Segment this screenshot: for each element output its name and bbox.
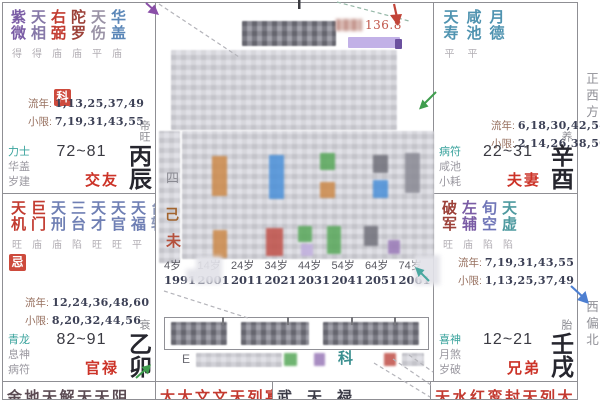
star-name: 左辅 — [459, 200, 477, 232]
summary-table — [164, 317, 429, 350]
liunian-label: 流年: — [28, 98, 52, 110]
star-column: 天福平 — [128, 200, 146, 248]
palace-footer: 力士 华盖 岁建 72~81 交友 帝旺 丙辰 — [8, 112, 152, 190]
star-column: 天才旺 — [88, 200, 106, 248]
star-brightness: 旺 — [443, 236, 453, 248]
star-brightness: 平 — [445, 45, 455, 57]
star-brightness: 庙 — [112, 45, 122, 57]
bazi-wood-char-block — [298, 226, 312, 242]
star-name: 华盖 — [108, 9, 126, 41]
xiaoxian-values: 1,13,25,37,49 — [485, 274, 574, 287]
sihua-badge-ji: 忌 — [9, 254, 26, 271]
e-mark: E — [182, 352, 190, 366]
center-info-panel[interactable]: 136.8 四 己 未 4岁1991 14岁2001 24岁2011 34岁20… — [155, 2, 434, 382]
star-name: 三台 — [68, 200, 86, 232]
star-brightness: 平 — [92, 45, 102, 57]
star-column: 天寿平 — [439, 9, 460, 57]
star-column: 紫微得 — [8, 9, 26, 57]
blurred-paragraph — [171, 50, 397, 130]
minor-gods: 青龙 息神 病符 — [8, 333, 44, 378]
palace-name: 交友 — [85, 169, 119, 190]
life-stage: 胎 — [560, 319, 572, 330]
star-name: 天才 — [88, 200, 106, 232]
star-column: 天刑庙 — [48, 200, 66, 248]
direction-label-west: 正西方 — [582, 72, 600, 122]
star-name: 天机 — [8, 200, 26, 232]
bottom-palace-stars: 天水红鸾封天列大 — [431, 382, 577, 400]
star-name: 紫微 — [8, 9, 26, 41]
liunian-values: 7,19,31,43,55 — [485, 256, 574, 269]
ganzhi-label: 壬戌 — [548, 332, 574, 378]
blurred-score-label — [336, 19, 362, 31]
palace-name: 兄弟 — [507, 357, 541, 378]
star-brightness: 庙 — [52, 236, 62, 248]
bazi-char-block — [405, 153, 420, 193]
star-brightness: 平 — [132, 236, 142, 248]
star-brightness: 得 — [32, 45, 42, 57]
censor-patch — [196, 256, 222, 284]
star-column: 陀罗庙 — [68, 9, 86, 57]
star-name: 天伤 — [88, 9, 106, 41]
score-row: 136.8 — [336, 18, 402, 32]
star-column: 左辅庙 — [459, 200, 477, 248]
pillar-char: 己 — [162, 207, 182, 221]
minor-gods: 喜神 月煞 岁破 — [439, 333, 475, 378]
direction-label-west-north: 西偏北 — [582, 300, 600, 350]
star-column: 巨门庙 — [28, 200, 46, 248]
star-name: 巨门 — [28, 200, 46, 232]
bazi-char-block — [388, 240, 400, 254]
age-range: 82~91 — [57, 331, 107, 349]
bottom-palace-4[interactable]: 天水红鸾封天列大 — [430, 381, 578, 400]
bottom-palace-stars: 武天禄 — [273, 382, 430, 400]
palace-name: 官禄 — [85, 357, 119, 378]
star-column: 天虚陷 — [499, 200, 517, 248]
bazi-char-block — [364, 226, 378, 246]
star-name: 右弼 — [48, 9, 66, 41]
star-column: 天机旺 — [8, 200, 26, 248]
star-brightness: 庙 — [72, 45, 82, 57]
bottom-palace-stars: 太太文文天列寡破天 — [156, 382, 272, 400]
date-column-char: 四 — [162, 171, 181, 184]
fire-char-block — [384, 353, 396, 366]
star-name: 天福 — [128, 200, 146, 232]
censor-patch — [414, 255, 440, 285]
ganzhi-label: 辛酉 — [548, 144, 574, 190]
star-column: 咸池平 — [462, 9, 483, 57]
star-name: 旬空 — [479, 200, 497, 232]
minor-gods: 病符 咸池 小耗 — [439, 145, 475, 190]
star-column: 旬空陷 — [479, 200, 497, 248]
star-column: 华盖庙 — [108, 9, 126, 57]
star-brightness: 陷 — [483, 236, 493, 248]
liunian-xiaoxian: 流年:7,19,31,43,55 小限:1,13,25,37,49 — [458, 254, 574, 291]
palace-xiongdi[interactable]: 破军旺左辅庙旬空陷天虚陷 流年:7,19,31,43,55 小限:1,13,25… — [433, 193, 578, 382]
star-column: 右弼庙 — [48, 9, 66, 57]
score-value: 136.8 — [365, 18, 402, 32]
star-name: 破军 — [439, 200, 457, 232]
star-brightness: 旺 — [12, 236, 22, 248]
bazi-char-block — [301, 244, 313, 256]
star-brightness: 旺 — [112, 236, 122, 248]
text-selection-highlight — [348, 37, 400, 48]
bazi-water-char-block — [269, 155, 284, 199]
pillar-char: 未 — [162, 233, 183, 248]
star-name: 陀罗 — [68, 9, 86, 41]
palace-footer: 喜神 月煞 岁破 12~21 兄弟 胎 壬戌 — [439, 300, 574, 378]
star-name: 天刑 — [48, 200, 66, 232]
palace-footer: 病符 咸池 小耗 22~31 夫妻 养 辛酉 — [439, 112, 574, 190]
liunian-label: 流年: — [458, 257, 482, 269]
bazi-wood-char-block — [320, 153, 335, 170]
star-brightness: 庙 — [52, 45, 62, 57]
star-name: 天相 — [28, 9, 46, 41]
star-brightness: 陷 — [72, 236, 82, 248]
star-column: 月德 — [485, 9, 506, 57]
selection-handle — [395, 39, 402, 49]
star-brightness: 庙 — [32, 236, 42, 248]
wood-char-block — [284, 353, 297, 366]
bazi-fire-char-block — [266, 228, 283, 256]
palace-footer: 青龙 息神 病符 82~91 官禄 衰 乙卯 — [8, 300, 152, 378]
star-list: 天机旺巨门庙天刑庙三台陷天才旺天官旺天福平台辅 — [3, 194, 155, 248]
palace-jiaoyou[interactable]: 紫微得天相得右弼庙陀罗庙天伤平华盖庙 科 流年:1,13,25,37,49 小限… — [2, 2, 156, 194]
bazi-water-char-block — [373, 180, 388, 198]
star-name: 天虚 — [499, 200, 517, 232]
life-stage: 帝旺 — [138, 120, 150, 142]
bottom-palace-2[interactable]: 太太文文天列寡破天 — [155, 381, 273, 400]
bottom-palace-3[interactable]: 武天禄 — [272, 381, 431, 400]
age-range: 22~31 — [483, 143, 533, 161]
star-list: 天寿平咸池平月德 — [434, 3, 577, 57]
star-name: 天寿 — [441, 9, 459, 41]
ziwei-chart-board: 紫微得天相得右弼庙陀罗庙天伤平华盖庙 科 流年:1,13,25,37,49 小限… — [0, 0, 600, 400]
palace-guanlu[interactable]: 天机旺巨门庙天刑庙三台陷天才旺天官旺天福平台辅 忌 流年:12,24,36,48… — [2, 193, 156, 382]
star-name: 天官 — [108, 200, 126, 232]
xiaoxian-label: 小限: — [458, 275, 482, 287]
blurred-row — [196, 353, 282, 367]
ganzhi-label: 乙卯 — [126, 332, 152, 378]
star-name: 月德 — [487, 9, 505, 41]
char-block — [314, 353, 325, 366]
star-column: 三台陷 — [68, 200, 86, 248]
minor-gods: 力士 华盖 岁建 — [8, 145, 44, 190]
ganzhi-label: 丙辰 — [126, 144, 152, 190]
life-stage: 养 — [560, 131, 572, 142]
star-brightness: 平 — [468, 45, 478, 57]
star-column: 天官旺 — [108, 200, 126, 248]
bazi-earth-char-block — [212, 156, 227, 196]
bottom-palace-stars: 金地天解天天阴 — [3, 382, 155, 400]
star-list: 紫微得天相得右弼庙陀罗庙天伤平华盖庙 — [3, 3, 155, 57]
bazi-earth-char-block — [213, 230, 227, 258]
blurred-name-row — [242, 21, 336, 46]
star-column: 破军旺 — [439, 200, 457, 248]
palace-name: 夫妻 — [507, 169, 541, 190]
bazi-wood-char-block — [327, 226, 341, 254]
palace-fuqi[interactable]: 天寿平咸池平月德 流年:6,18,30,42,54 小限:2,14,26,38,… — [433, 2, 578, 194]
bazi-char-block — [373, 155, 388, 173]
bazi-earth-char-block — [320, 182, 335, 198]
star-brightness: 庙 — [463, 236, 473, 248]
age-range: 12~21 — [483, 331, 533, 349]
star-column: 天相得 — [28, 9, 46, 57]
star-name: 咸池 — [464, 9, 482, 41]
liunian-values: 1,13,25,37,49 — [55, 97, 144, 110]
star-list: 破军旺左辅庙旬空陷天虚陷 — [434, 194, 577, 248]
blurred-row — [402, 353, 424, 366]
star-column: 天伤平 — [88, 9, 106, 57]
star-brightness: 陷 — [503, 236, 513, 248]
age-range: 72~81 — [57, 143, 107, 161]
star-brightness: 得 — [12, 45, 22, 57]
bottom-palace-1[interactable]: 金地天解天天阴 — [2, 381, 156, 400]
ke-transform-mark: 科 — [338, 347, 353, 368]
life-stage: 衰 — [138, 319, 150, 330]
star-brightness: 旺 — [92, 236, 102, 248]
